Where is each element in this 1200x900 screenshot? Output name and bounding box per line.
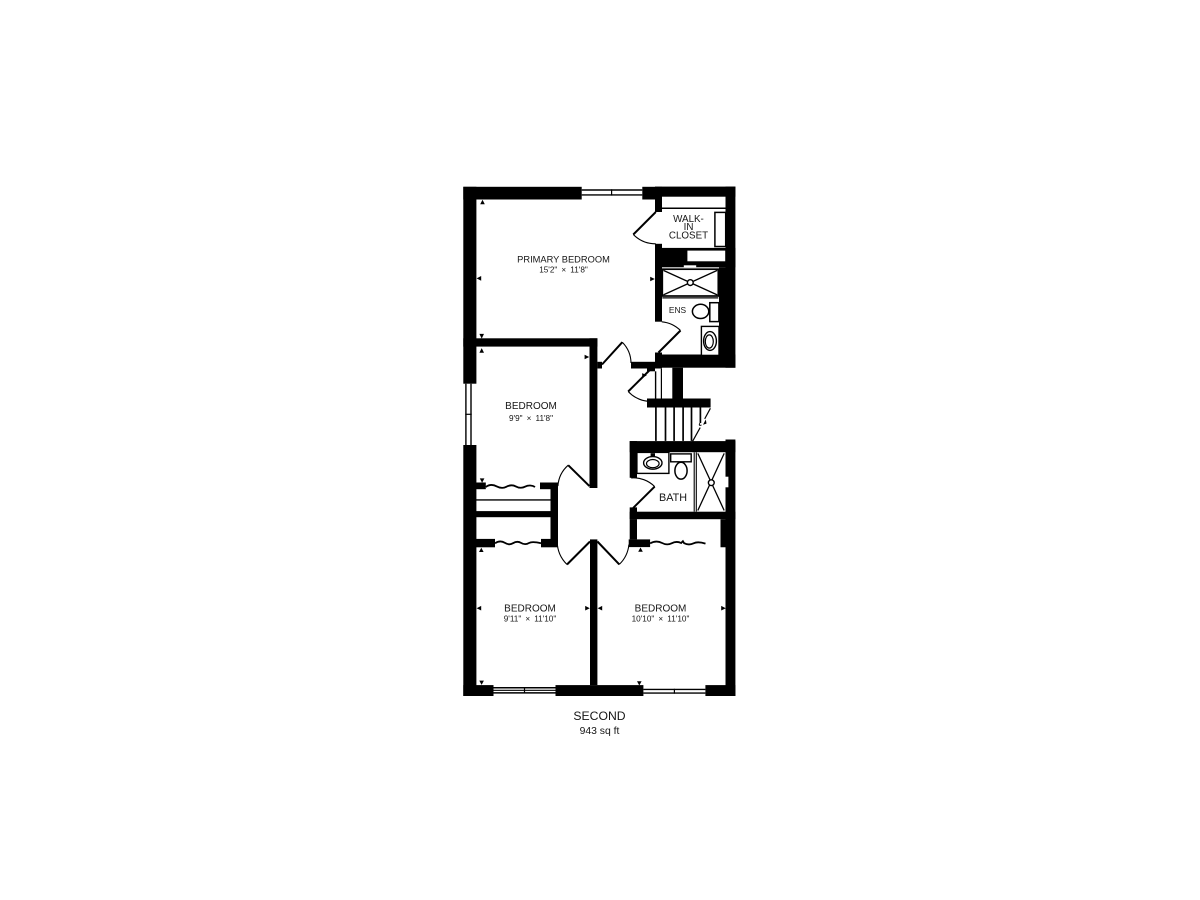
svg-text:9'9" × 11'8": 9'9" × 11'8" xyxy=(509,414,553,423)
svg-text:PRIMARY BEDROOM: PRIMARY BEDROOM xyxy=(517,255,610,265)
svg-text:ENS: ENS xyxy=(669,305,687,315)
svg-text:BEDROOM: BEDROOM xyxy=(504,603,556,614)
svg-text:SECOND: SECOND xyxy=(573,709,625,723)
svg-text:10'10" × 11'10": 10'10" × 11'10" xyxy=(632,615,690,624)
svg-text:15'2" × 11'8": 15'2" × 11'8" xyxy=(539,265,588,274)
svg-text:9'11" × 11'10": 9'11" × 11'10" xyxy=(504,615,557,624)
svg-text:BATH: BATH xyxy=(659,492,687,504)
svg-text:BEDROOM: BEDROOM xyxy=(635,603,687,614)
svg-text:CLOSET: CLOSET xyxy=(669,230,708,241)
svg-text:943 sq ft: 943 sq ft xyxy=(580,726,620,737)
svg-text:BEDROOM: BEDROOM xyxy=(505,401,557,412)
